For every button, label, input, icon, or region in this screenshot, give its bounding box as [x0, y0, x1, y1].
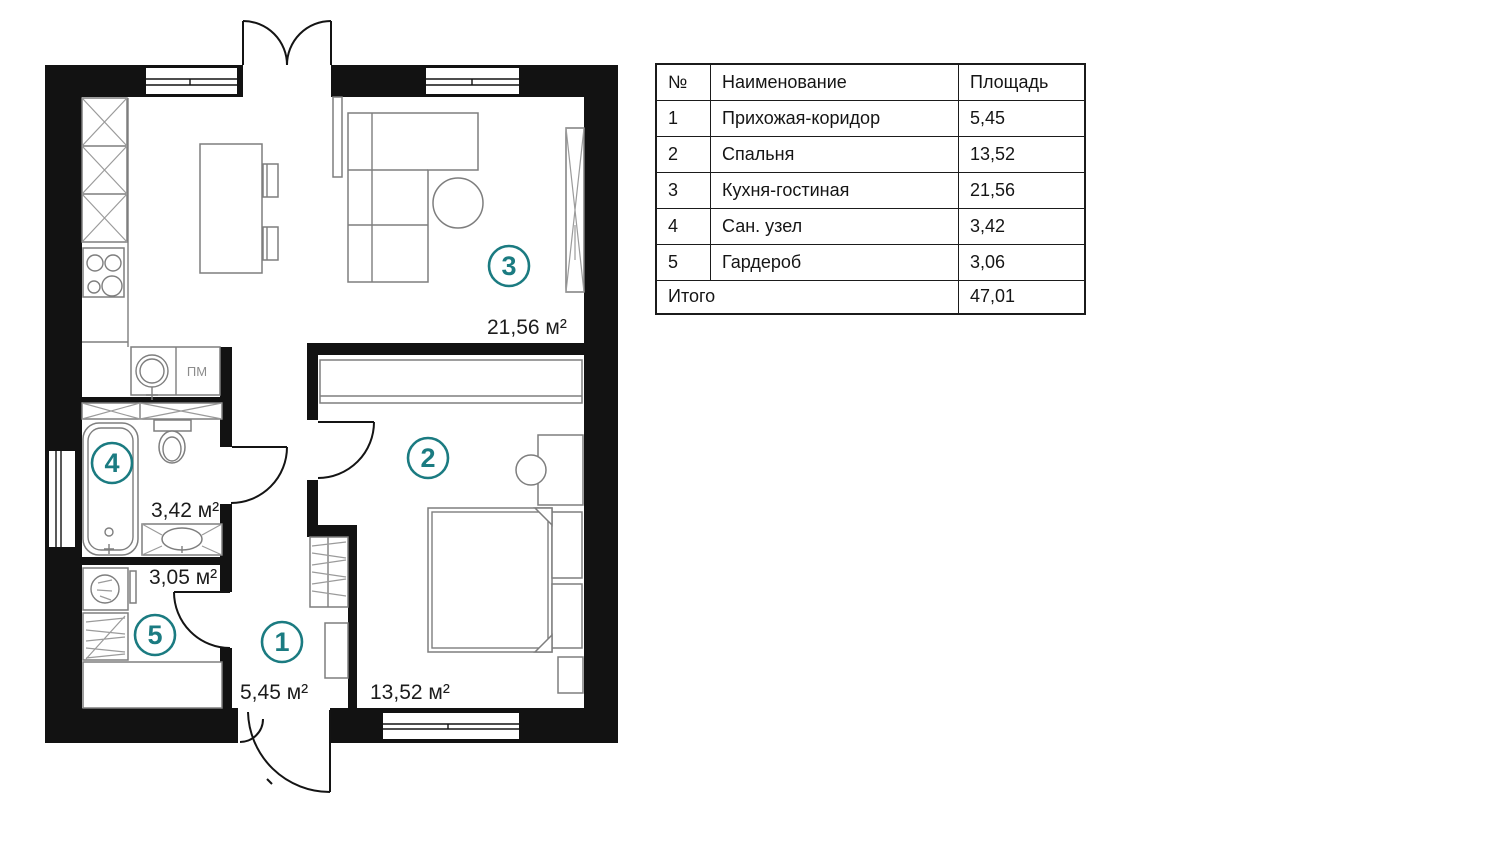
nightstand-lamp	[516, 435, 583, 505]
hallway-area-label: 5,45 м²	[240, 681, 308, 704]
kitchen-sink-cabinet: ПМ	[131, 347, 220, 400]
cell-num: 3	[656, 172, 711, 208]
room-badge-2: 2	[408, 438, 448, 478]
wardrobe-shelves	[83, 613, 128, 660]
table-row: 3 Кухня-гостиная 21,56	[656, 172, 1085, 208]
room-number-2: 2	[420, 443, 435, 473]
cell-area: 5,45	[959, 100, 1086, 136]
cell-name: Прихожая-коридор	[711, 100, 959, 136]
bathroom-sink	[142, 524, 222, 555]
bed	[428, 508, 583, 693]
dishwasher-label: ПМ	[187, 364, 207, 379]
cell-num: 5	[656, 244, 711, 280]
room-badge-1: 1	[262, 622, 302, 662]
total-value: 47,01	[959, 280, 1086, 314]
table-row: 2 Спальня 13,52	[656, 136, 1085, 172]
cell-num: 1	[656, 100, 711, 136]
room-number-1: 1	[274, 627, 289, 657]
window-left	[48, 443, 76, 555]
table-row: 4 Сан. узел 3,42	[656, 208, 1085, 244]
cell-name: Кухня-гостиная	[711, 172, 959, 208]
entry-balcony-door	[243, 21, 331, 65]
wardrobe-hanging-rail	[83, 662, 222, 708]
bathroom-door	[231, 447, 287, 503]
kitchen-island	[200, 144, 278, 273]
window-top-left	[145, 67, 238, 95]
cell-name: Сан. узел	[711, 208, 959, 244]
cell-num: 4	[656, 208, 711, 244]
bedroom-door	[318, 422, 374, 478]
header-name: Наименование	[711, 64, 959, 100]
room-number-4: 4	[104, 448, 119, 478]
header-num: №	[656, 64, 711, 100]
window-bottom	[382, 712, 520, 740]
cell-area: 3,06	[959, 244, 1086, 280]
table-row: 1 Прихожая-коридор 5,45	[656, 100, 1085, 136]
room-badge-5: 5	[135, 615, 175, 655]
room-number-5: 5	[147, 620, 162, 650]
total-label: Итого	[656, 280, 959, 314]
header-area: Площадь	[959, 64, 1086, 100]
table-row: 5 Гардероб 3,06	[656, 244, 1085, 280]
room-badge-3: 3	[489, 246, 529, 286]
bathroom-shelf	[82, 403, 222, 419]
cell-num: 2	[656, 136, 711, 172]
bedroom-wardrobe-strip	[320, 360, 582, 403]
bathroom-area-label: 3,42 м²	[151, 499, 219, 522]
coffee-table	[433, 178, 483, 228]
table-total-row: Итого 47,01	[656, 280, 1085, 314]
cell-name: Гардероб	[711, 244, 959, 280]
wardrobe-door	[174, 592, 230, 648]
window-top-right	[425, 67, 520, 95]
stove	[83, 248, 124, 297]
room-badge-4: 4	[92, 443, 132, 483]
cell-name: Спальня	[711, 136, 959, 172]
room-area-table: № Наименование Площадь 1 Прихожая-коридо…	[655, 63, 1086, 315]
kitchen-area-label: 21,56 м²	[487, 316, 567, 339]
cell-area: 13,52	[959, 136, 1086, 172]
washing-machine	[83, 568, 136, 610]
wardrobe-area-label: 3,05 м²	[149, 566, 217, 589]
table-header-row: № Наименование Площадь	[656, 64, 1085, 100]
entrance-door	[240, 710, 330, 792]
toilet	[154, 420, 191, 463]
kitchen-tall-cabinets	[82, 98, 127, 242]
hallway-shoe-rack	[310, 537, 348, 678]
room-number-3: 3	[501, 251, 516, 281]
cell-area: 3,42	[959, 208, 1086, 244]
bedroom-area-label: 13,52 м²	[370, 681, 450, 704]
cell-area: 21,56	[959, 172, 1086, 208]
tv-unit	[566, 128, 584, 292]
floor-plan-page: ПМ	[0, 0, 1500, 843]
area-table: № Наименование Площадь 1 Прихожая-коридо…	[655, 63, 1086, 315]
